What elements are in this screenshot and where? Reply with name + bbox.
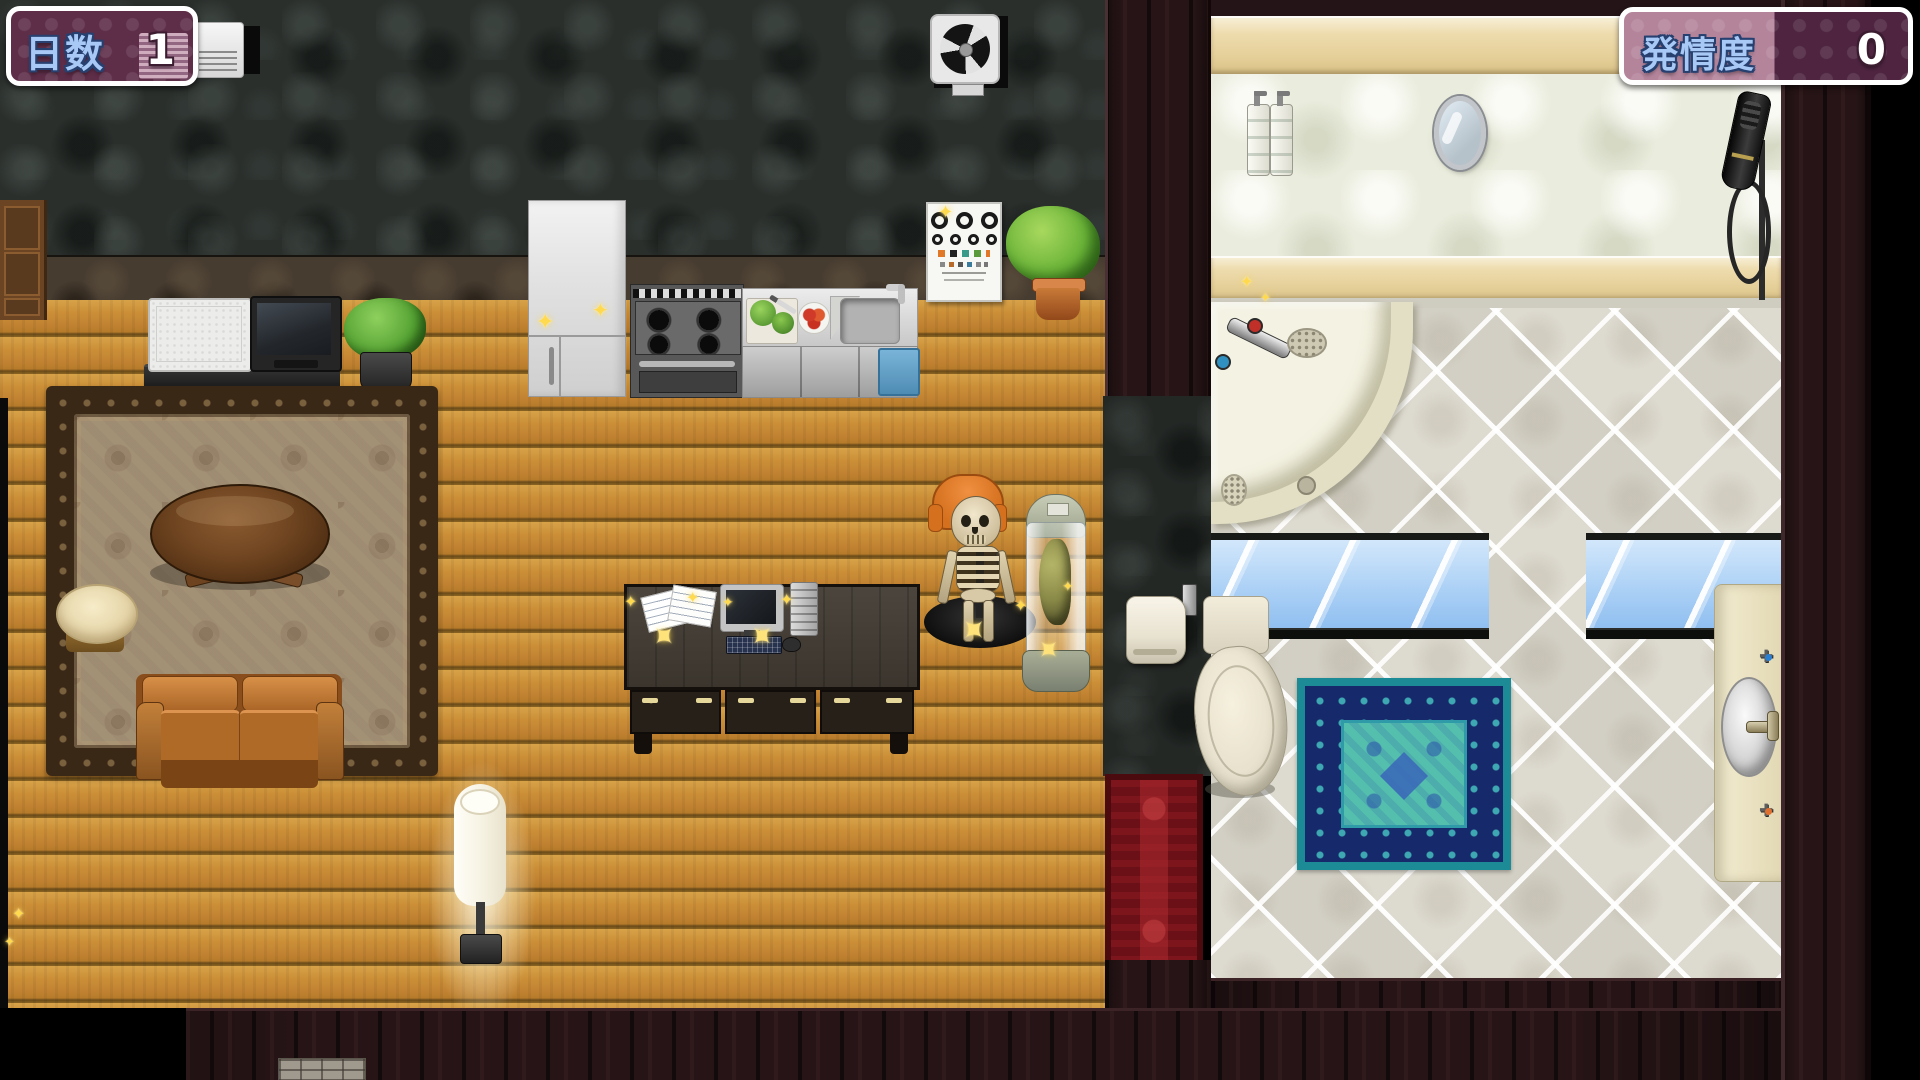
cabinet-drawer (4, 298, 40, 316)
eye-chart-symbol (986, 234, 997, 245)
skull-teeth (964, 535, 986, 544)
appliance-inner-line (156, 306, 242, 362)
hud-arousal-label: 発情度 (1642, 26, 1756, 78)
fridge-handle (549, 347, 554, 385)
bath-marble-wall (1211, 74, 1781, 258)
window-frame-top (1211, 533, 1489, 540)
oven-door (639, 371, 737, 393)
eye-chart-symbol (981, 212, 998, 229)
divider-pillar (1105, 0, 1211, 396)
plant-foliage (344, 298, 426, 360)
fridge-door-line (529, 335, 625, 337)
eye-chart-text-line (942, 272, 986, 274)
sparkle-icon[interactable]: ✦ (1260, 292, 1271, 305)
sparkle-icon[interactable]: ✦ (624, 594, 637, 610)
eye-chart-symbol (968, 234, 979, 245)
hud-days-label: 日数 (25, 23, 105, 78)
hud-days-value: 1 (146, 25, 175, 74)
white-appliance[interactable] (148, 298, 252, 372)
sink-faucet-icon (1767, 711, 1779, 741)
game-screen: ✚ ✚ ✦ ✦ ✦ ✦ ✦ ✦ ✦ ✦ ✦ ✦ ✦ ✦ ✦ ✦ ✦ ✦ ✦ 日数… (0, 0, 1920, 1080)
valve-knob: ✚ (1759, 647, 1779, 667)
desk-drawer[interactable] (630, 690, 721, 734)
hud-arousal: 発情度 0 (1619, 7, 1913, 85)
sink-vanity[interactable]: ✚ ✚ (1714, 584, 1783, 882)
sink-faucet-icon (898, 284, 905, 304)
drawer-handle (642, 698, 658, 703)
sparkle-icon[interactable]: ✦ (12, 906, 25, 922)
stove-burners (635, 301, 741, 355)
sparkle-icon[interactable]: ✦ (1062, 580, 1074, 594)
desk-leg (634, 734, 652, 754)
eye-chart-color-row (938, 250, 990, 257)
sofa-seat-cushion (240, 710, 318, 765)
cabinet-door (4, 206, 40, 250)
sofa-armrest (136, 702, 164, 780)
drawer-handle (886, 698, 902, 703)
sparkle-icon[interactable]: ✦ (592, 300, 609, 320)
eye-chart-row-small (932, 234, 997, 245)
sparkle-icon[interactable]: ✦ (938, 204, 953, 222)
cold-knob-icon (1215, 354, 1231, 370)
sparkle-icon[interactable]: ✦ (1240, 274, 1253, 290)
shower-face (1739, 100, 1762, 131)
sofa-seat-cushion (161, 710, 240, 765)
left-wall-edge (0, 398, 8, 1010)
toilet-bowl (1187, 642, 1294, 801)
valve-knob: ✚ (1759, 801, 1779, 821)
drawer-handle (738, 698, 754, 703)
specimen-capsule[interactable] (1020, 492, 1090, 696)
lamp-top (460, 789, 500, 815)
mirror-glare (1441, 110, 1464, 145)
ac-vents (199, 51, 237, 73)
cabinet-door (4, 252, 40, 296)
toilet-paper-holder[interactable] (1126, 596, 1186, 664)
lamp-base (460, 934, 502, 964)
kitchen-sink (840, 298, 900, 344)
plant-pot (1036, 288, 1080, 320)
right-void (1871, 0, 1920, 1080)
sparkle-icon[interactable]: ✦ (1014, 598, 1027, 614)
floor-lamp[interactable] (454, 784, 506, 906)
tub-drain (1297, 476, 1316, 495)
wooden-cabinet[interactable] (0, 200, 47, 320)
eye-chart-symbol (950, 234, 961, 245)
sparkle-icon[interactable]: ✦ (722, 596, 734, 610)
toilet[interactable] (1195, 594, 1301, 806)
capsule-label (1047, 503, 1069, 516)
sofa-armrest (316, 702, 344, 780)
bathroom: ✚ ✚ (1211, 0, 1781, 1080)
table-sheen (176, 496, 294, 526)
drawer-handle (696, 698, 712, 703)
right-wall-pillar (1781, 0, 1871, 1080)
pc-tower[interactable] (790, 582, 818, 636)
hud-days: 日数 1 (6, 6, 198, 86)
skull-eye (979, 515, 989, 527)
potted-plant-large[interactable] (1006, 206, 1102, 322)
coffee-table[interactable] (150, 484, 330, 584)
drawer-handle (790, 698, 806, 703)
tv-screen (257, 303, 331, 355)
wall-air-conditioner[interactable] (194, 22, 244, 78)
cold-dot-icon (1765, 654, 1772, 661)
ventilation-fan[interactable] (930, 14, 1000, 84)
mouse[interactable] (782, 637, 801, 652)
sparkle-icon[interactable]: ✦ (780, 592, 793, 608)
potted-plant-small[interactable] (342, 298, 430, 396)
tub-drain-grate (1287, 328, 1327, 358)
eye-chart-text-line (944, 279, 984, 281)
bath-rug-center (1341, 720, 1467, 828)
drawer-handle (834, 698, 850, 703)
skeleton-skull (951, 496, 1001, 548)
toilet-lid-line (1202, 662, 1279, 780)
lettuce (772, 312, 794, 334)
eye-chart-symbol (932, 234, 943, 245)
skeleton-ribcage (956, 546, 1000, 592)
shower-hose (1727, 180, 1771, 284)
plant-foliage (1006, 206, 1100, 284)
room-divider (1105, 0, 1211, 1080)
window-frame-top (1586, 533, 1781, 540)
fridge-freezer-line (559, 337, 561, 396)
rug-medallion (1380, 752, 1428, 800)
sofa-front (161, 760, 318, 788)
hot-dot-icon (1765, 808, 1772, 815)
bottom-left-void (0, 1008, 186, 1080)
television[interactable] (250, 296, 342, 372)
eye-chart-color-row (940, 262, 988, 267)
gas-stove[interactable] (630, 284, 744, 398)
ac-shadow (242, 26, 260, 74)
hot-knob-icon (1247, 318, 1263, 334)
desk-drawer[interactable] (820, 690, 914, 734)
oven-handle (639, 361, 735, 367)
blue-bin (878, 348, 920, 396)
shampoo-bottle[interactable] (1247, 104, 1270, 176)
tomato-plate (798, 302, 830, 334)
shower-band (1731, 152, 1753, 160)
doorway-rug[interactable] (1105, 774, 1203, 966)
stove-checker-trim (633, 289, 741, 298)
eye-chart-symbol (956, 212, 973, 229)
stone-doormat[interactable] (278, 1058, 366, 1080)
pump-nozzle-icon (1277, 91, 1290, 96)
tv-base (274, 360, 318, 368)
sofa[interactable] (136, 674, 342, 796)
skull-nose (972, 527, 978, 534)
player-character-hair-tuft (928, 504, 943, 532)
fan-hub (959, 43, 973, 57)
fan-bracket (952, 84, 984, 96)
hud-arousal-value: 0 (1857, 25, 1886, 74)
shampoo-bottle[interactable] (1270, 104, 1293, 176)
paper-roll-edge (1133, 649, 1177, 655)
pump-nozzle-icon (1254, 91, 1267, 96)
stool[interactable] (56, 584, 138, 644)
bath-rug[interactable] (1297, 678, 1511, 870)
bath-wall-baseboard (1211, 256, 1781, 300)
skull-eye (961, 515, 971, 527)
kitchen-counter[interactable] (742, 288, 916, 396)
sparkle-icon[interactable]: ✦ (686, 590, 699, 606)
refrigerator[interactable] (528, 200, 626, 397)
living-room (0, 0, 1105, 1080)
desk-drawer[interactable] (725, 690, 816, 734)
sparkle-icon[interactable]: ✦ (4, 936, 15, 949)
tub-jet (1221, 474, 1247, 506)
desk-leg (890, 734, 908, 754)
wall-mirror[interactable] (1434, 96, 1486, 170)
sparkle-icon[interactable]: ✦ (536, 312, 554, 334)
